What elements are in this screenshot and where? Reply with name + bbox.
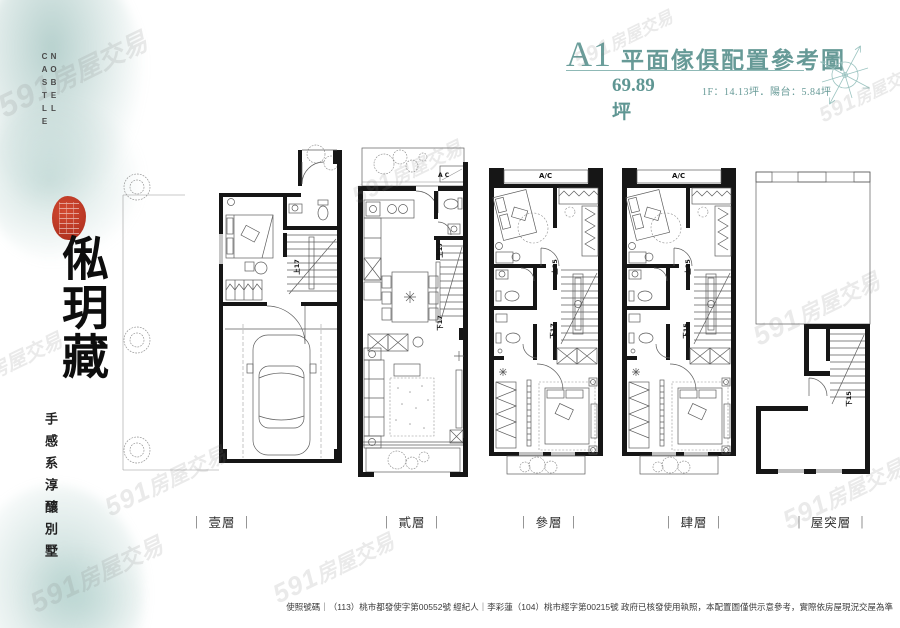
ac-label-2f: A C bbox=[438, 172, 449, 179]
floorplan-page: 591房屋交易 591房屋交易 591房屋交易 591房屋交易 591房屋交易 … bbox=[0, 0, 900, 628]
watermark: 591房屋交易 bbox=[268, 525, 399, 610]
title-underline bbox=[566, 70, 804, 71]
floorplan-level2 bbox=[352, 142, 474, 482]
compass-icon bbox=[808, 38, 882, 112]
floor-label-roof: ｜ 屋突層 ｜ bbox=[771, 512, 891, 531]
stair-label-roof-down: 下15 bbox=[843, 391, 853, 407]
stair-label-2f-up: 上17 bbox=[434, 242, 444, 258]
ac-label-4f: A/C bbox=[672, 172, 685, 180]
floorplan-level4 bbox=[618, 166, 740, 478]
stair-label-1f-up: 上17 bbox=[291, 259, 301, 275]
floorplan-roof bbox=[748, 166, 878, 481]
stair-label-3f-up: 上15 bbox=[549, 259, 559, 275]
stair-label-2f-down: 下17 bbox=[434, 315, 444, 331]
brand-name-english: NOBEL CASTLE bbox=[40, 52, 58, 202]
floor-label-level2: ｜ 貳層 ｜ bbox=[352, 512, 472, 531]
stair-label-4f-down: 下15 bbox=[680, 323, 690, 339]
brand-sidebar: NOBEL CASTLE 俬玥藏 手感系淳釀別墅 bbox=[0, 0, 112, 628]
unit-code: A1 bbox=[566, 33, 612, 75]
stair-label-3f-down: 下17 bbox=[547, 323, 557, 339]
floor-label-level3: ｜ 參層 ｜ bbox=[489, 512, 609, 531]
stair-label-4f-up: 上15 bbox=[682, 259, 692, 275]
ac-label-3f: A/C bbox=[539, 172, 552, 180]
floor-label-level1: ｜ 壹層 ｜ bbox=[162, 512, 282, 531]
brand-tagline: 手感系淳釀別墅 bbox=[41, 412, 60, 566]
total-area: 69.89坪 bbox=[612, 75, 655, 124]
license-disclaimer: 使照號碼｜（113）桃市都發使字第00552號 經紀人｜李彩蓮（104）桃市經字… bbox=[286, 601, 893, 613]
brand-name-calligraphy: 俬玥藏 bbox=[8, 234, 104, 381]
floorplan-level3 bbox=[485, 166, 607, 478]
seal-marks bbox=[59, 202, 79, 234]
floorplan-level1 bbox=[115, 138, 345, 473]
floor-label-level4: ｜ 肆層 ｜ bbox=[634, 512, 754, 531]
